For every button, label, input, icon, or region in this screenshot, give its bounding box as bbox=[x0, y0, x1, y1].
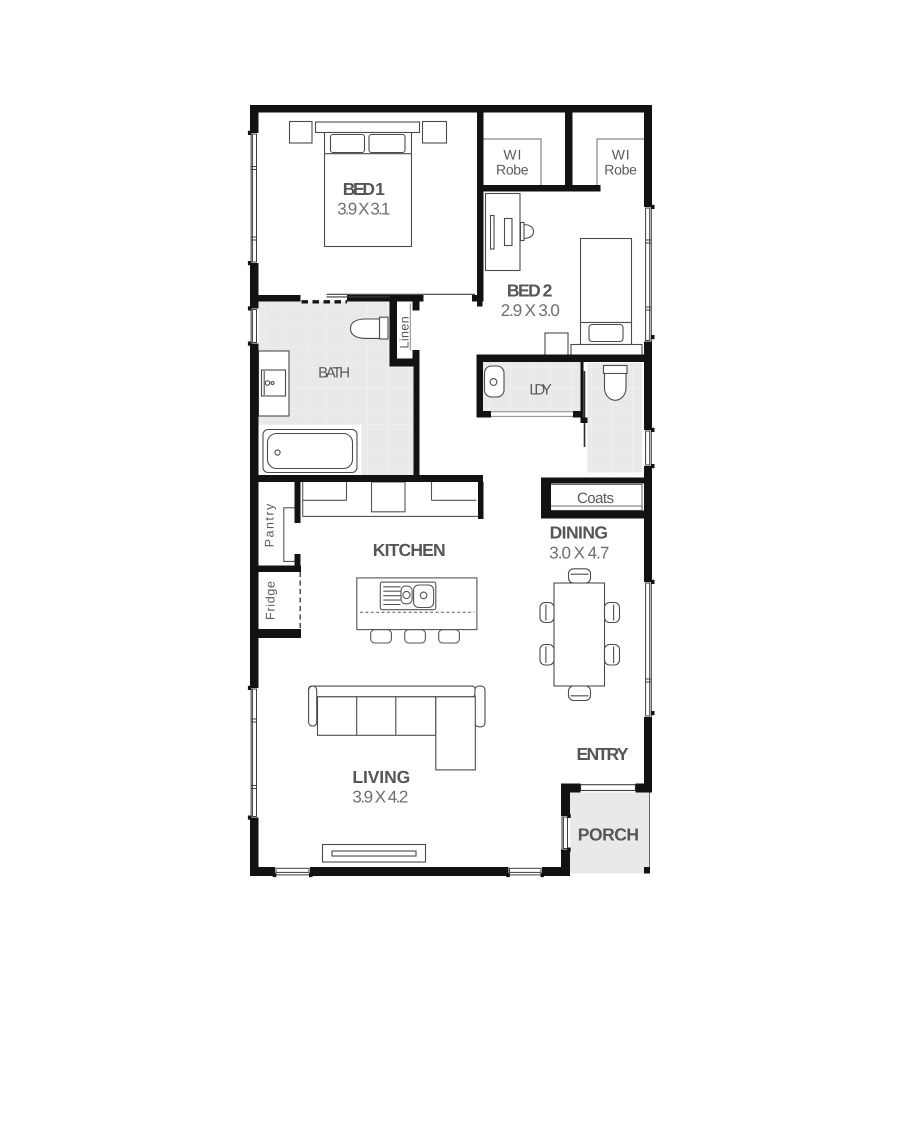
svg-text:2.9 X 3.0: 2.9 X 3.0 bbox=[501, 301, 560, 320]
svg-text:Robe: Robe bbox=[604, 161, 637, 177]
svg-text:Coats: Coats bbox=[577, 490, 614, 507]
svg-text:LIVING: LIVING bbox=[352, 767, 410, 787]
svg-text:WI: WI bbox=[503, 146, 521, 162]
svg-text:KITCHEN: KITCHEN bbox=[373, 540, 446, 560]
svg-text:ENTRY: ENTRY bbox=[577, 744, 629, 764]
svg-text:DINING: DINING bbox=[550, 523, 608, 543]
svg-text:3.0 X 4.7: 3.0 X 4.7 bbox=[549, 544, 609, 563]
svg-text:WI: WI bbox=[612, 146, 630, 162]
svg-text:LDY: LDY bbox=[529, 381, 551, 398]
svg-text:BED 1: BED 1 bbox=[343, 179, 385, 199]
svg-text:BATH: BATH bbox=[318, 365, 350, 382]
svg-text:BED 2: BED 2 bbox=[507, 280, 553, 300]
svg-text:3.9 X 3.1: 3.9 X 3.1 bbox=[337, 200, 390, 219]
svg-text:Linen: Linen bbox=[398, 316, 412, 348]
svg-text:PORCH: PORCH bbox=[578, 825, 639, 845]
svg-text:3.9 X 4.2: 3.9 X 4.2 bbox=[352, 787, 408, 806]
svg-text:Fridge: Fridge bbox=[264, 581, 278, 620]
svg-text:Robe: Robe bbox=[496, 161, 529, 177]
svg-text:Pantry: Pantry bbox=[263, 503, 277, 547]
